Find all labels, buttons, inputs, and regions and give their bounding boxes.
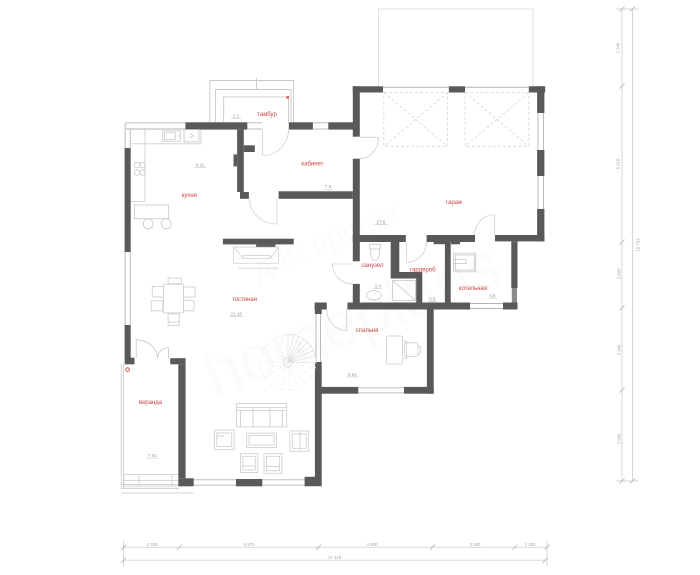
svg-text:17 415: 17 415 xyxy=(328,555,342,560)
svg-text:3 903: 3 903 xyxy=(617,268,622,279)
svg-text:7.5: 7.5 xyxy=(325,184,332,189)
svg-text:2.2: 2.2 xyxy=(233,113,240,118)
svg-text:кухня: кухня xyxy=(182,193,197,199)
svg-text:кабинет: кабинет xyxy=(301,161,323,167)
svg-text:санузел: санузел xyxy=(362,263,384,269)
svg-text:21.18: 21.18 xyxy=(230,311,242,316)
svg-text:19 753: 19 753 xyxy=(636,238,641,252)
svg-text:1 320: 1 320 xyxy=(525,542,536,547)
svg-text:2 325: 2 325 xyxy=(147,542,158,547)
svg-text:гостиная: гостиная xyxy=(233,297,257,303)
svg-text:3 960: 3 960 xyxy=(617,433,622,444)
svg-text:8.31: 8.31 xyxy=(196,163,205,168)
svg-text:2 540: 2 540 xyxy=(616,42,621,53)
svg-text:5 970: 5 970 xyxy=(244,542,255,547)
svg-text:3 340: 3 340 xyxy=(617,344,622,355)
svg-text:7.01: 7.01 xyxy=(148,453,157,458)
svg-text:3 000: 3 000 xyxy=(470,542,481,547)
svg-text:4 800: 4 800 xyxy=(367,542,378,547)
svg-text:6 010: 6 010 xyxy=(616,158,621,169)
svg-text:тамбур: тамбур xyxy=(257,112,277,118)
svg-text:гараж: гараж xyxy=(446,200,462,206)
svg-text:8.61: 8.61 xyxy=(348,372,357,377)
svg-text:веранда: веранда xyxy=(139,400,163,406)
